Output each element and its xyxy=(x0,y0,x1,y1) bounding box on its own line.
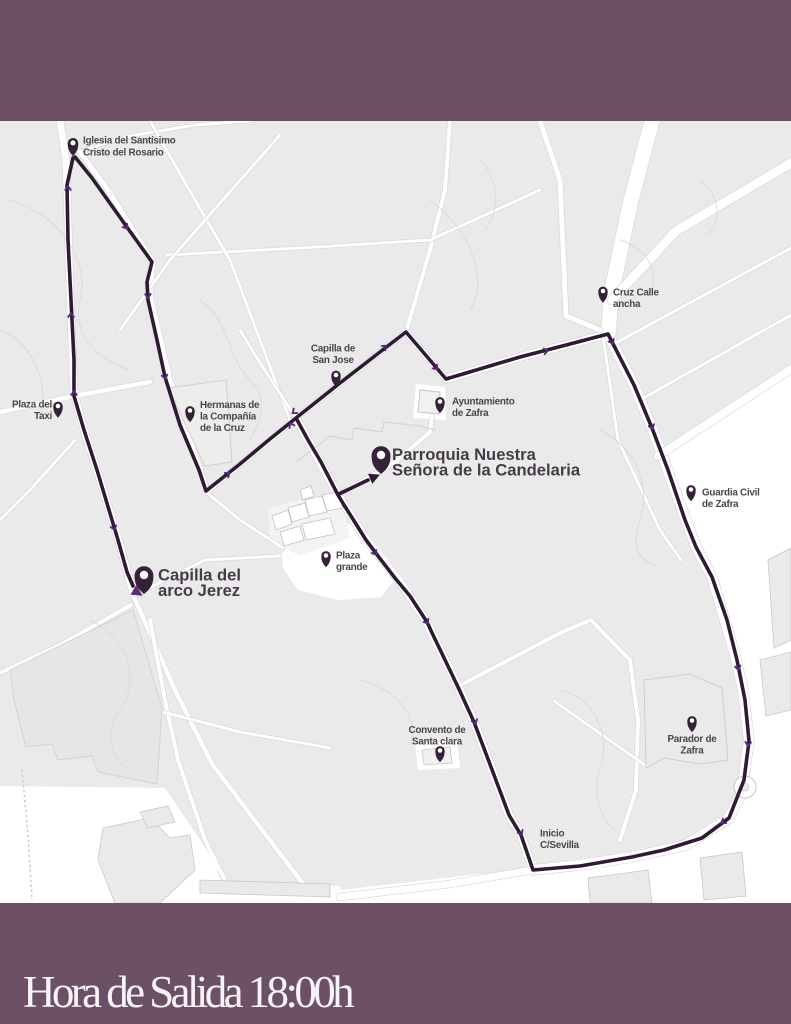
svg-text:Hora de Salida 18:00h: Hora de Salida 18:00h xyxy=(23,967,354,1017)
svg-text:Capilla delarco Jerez: Capilla delarco Jerez xyxy=(158,566,241,601)
svg-text:Capilla deSan Jose: Capilla deSan Jose xyxy=(311,344,356,367)
svg-text:Convento deSanta clara: Convento deSanta clara xyxy=(408,725,466,748)
svg-text:Iglesia del SantísimoCristo de: Iglesia del SantísimoCristo del Rosario xyxy=(83,136,176,159)
